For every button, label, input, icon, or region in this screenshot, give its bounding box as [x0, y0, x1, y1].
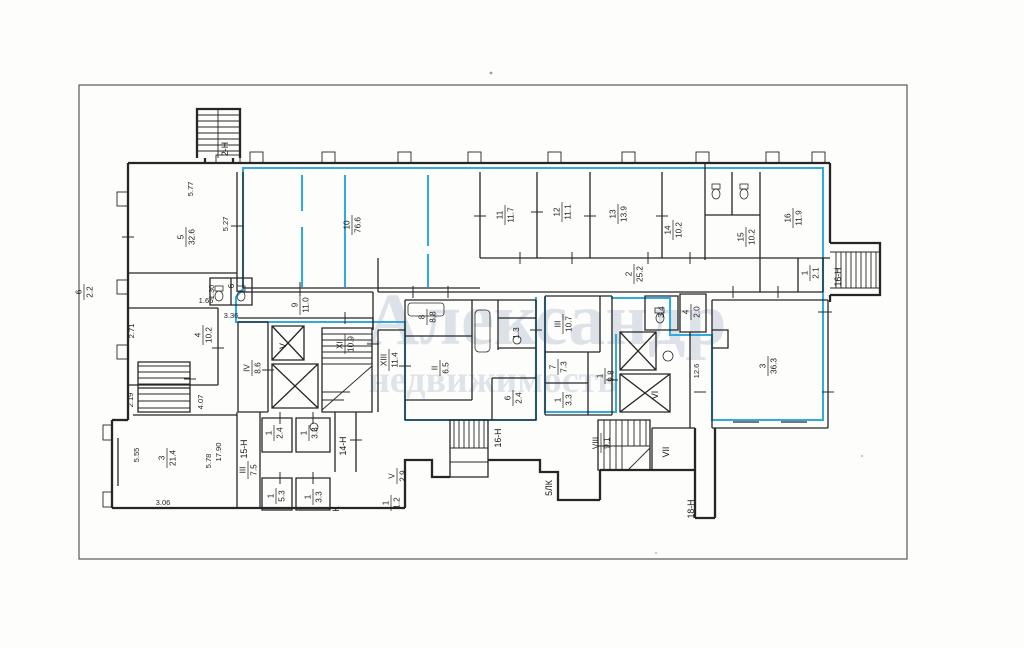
svg-text:10.2: 10.2	[205, 327, 214, 343]
svg-text:1: 1	[265, 430, 274, 435]
svg-text:9.8: 9.8	[607, 370, 616, 382]
room-label-1-24: 12.4	[265, 425, 285, 441]
svg-text:14: 14	[664, 225, 673, 235]
svg-text:2.4: 2.4	[515, 392, 524, 404]
svg-text:6: 6	[504, 395, 513, 400]
svg-text:1: 1	[554, 397, 563, 402]
room-label-1-33b: 13.3	[300, 425, 320, 441]
svg-text:2.1: 2.1	[812, 267, 821, 279]
svg-text:8: 8	[418, 314, 427, 319]
svg-text:10.2: 10.2	[748, 229, 757, 245]
annotation-16n-right: 16-Н	[833, 267, 843, 286]
room-label-1-small: 12.1	[801, 265, 821, 281]
svg-text:5.3: 5.3	[278, 490, 287, 502]
svg-text:9.1: 9.1	[603, 437, 612, 449]
room-label-1-3: 1.3	[512, 327, 521, 339]
svg-text:2.4: 2.4	[276, 427, 285, 439]
room-label-5: 532.6	[177, 227, 197, 247]
svg-text:5: 5	[177, 234, 186, 239]
floor-plan-drawing: Александр недвижимость	[0, 0, 1024, 648]
room-label-1-33c: 13.3	[304, 489, 324, 505]
svg-text:3.3: 3.3	[565, 394, 574, 406]
svg-text:2: 2	[625, 271, 634, 276]
room-label-3-4: 3.4	[657, 306, 666, 318]
svg-text:III: III	[554, 321, 563, 328]
room-label-6-ext: 62.2	[75, 284, 95, 300]
svg-text:1.3: 1.3	[512, 327, 521, 339]
svg-text:10: 10	[343, 220, 352, 230]
svg-text:1: 1	[300, 430, 309, 435]
room-label-11: 1111.7	[496, 205, 516, 225]
dim-306: 3.06	[156, 498, 171, 507]
dim-1790: 17.90	[214, 442, 223, 461]
svg-text:32.6: 32.6	[188, 229, 197, 245]
room-label-III-75: III7.5	[239, 461, 259, 479]
svg-text:3.3: 3.3	[315, 491, 324, 503]
room-label-IV: IV8.6	[243, 360, 263, 376]
dim-165: 1.65	[199, 296, 214, 305]
svg-text:8.6: 8.6	[254, 362, 263, 374]
svg-text:11.7: 11.7	[507, 207, 516, 223]
elevator-label-vi: VI	[650, 391, 660, 399]
annotation-5lk: 5ЛК	[544, 479, 554, 496]
svg-text:10.9: 10.9	[347, 336, 356, 352]
svg-text:6.5: 6.5	[442, 362, 451, 374]
room-label-V-29: V2.9	[388, 468, 408, 484]
svg-text:1: 1	[382, 500, 391, 505]
svg-text:7.5: 7.5	[250, 464, 259, 476]
svg-text:XIII: XIII	[380, 354, 389, 366]
dim-577: 5.77	[186, 182, 195, 197]
annotation-14n: 14-Н	[338, 436, 348, 455]
svg-text:11.4: 11.4	[391, 352, 400, 368]
room-label-3-right: 336.3	[759, 356, 779, 376]
svg-text:2.0: 2.0	[693, 306, 702, 318]
dim-336: 3.36	[224, 311, 239, 320]
room-label-15: 1510.2	[737, 227, 757, 247]
svg-text:1: 1	[801, 270, 810, 275]
svg-text:7.3: 7.3	[560, 361, 569, 373]
svg-text:13: 13	[609, 209, 618, 219]
svg-text:1.2: 1.2	[393, 497, 402, 509]
svg-text:II: II	[431, 366, 440, 371]
svg-text:1: 1	[304, 494, 313, 499]
svg-text:III: III	[239, 467, 248, 474]
annotation-16n-bottom: 16-Н	[493, 428, 503, 447]
elevator-label-v: V	[278, 343, 288, 349]
room-label-XII: XII10.9	[336, 334, 356, 354]
svg-text:6: 6	[227, 283, 236, 288]
svg-text:10.2: 10.2	[675, 222, 684, 238]
dim-219: 2.19	[126, 393, 135, 408]
elevator-label-vii: VII	[661, 447, 671, 458]
svg-text:2.2: 2.2	[86, 286, 95, 298]
svg-text:25.2: 25.2	[636, 266, 645, 282]
room-label-3-left: 321.4	[158, 448, 178, 468]
dim-555: 5.55	[132, 448, 141, 463]
room-label-16: 1611.9	[784, 208, 804, 228]
svg-text:1: 1	[596, 373, 605, 378]
room-label-13: 1313.9	[609, 204, 629, 224]
svg-text:4: 4	[194, 332, 203, 337]
dim-578: 5.78	[204, 454, 213, 469]
svg-text:9: 9	[291, 302, 300, 307]
svg-text:XII: XII	[336, 339, 345, 349]
annotation-18n: 18-Н	[686, 499, 696, 518]
svg-text:11.0: 11.0	[302, 297, 311, 313]
svg-text:11.1: 11.1	[564, 204, 573, 220]
dim-271: 2.71	[127, 324, 136, 339]
svg-text:16: 16	[784, 213, 793, 223]
room-label-6-wc: 6	[227, 283, 236, 288]
svg-text:3.4: 3.4	[657, 306, 666, 318]
room-label-12: 1211.1	[553, 202, 573, 222]
dim-126: 12.6	[692, 364, 701, 379]
scanned-floor-plan-page: Александр недвижимость	[0, 0, 1024, 648]
annotation-15n: 15-Н	[239, 439, 249, 458]
svg-text:12: 12	[553, 207, 562, 217]
svg-text:10.7: 10.7	[565, 316, 574, 332]
svg-text:11: 11	[496, 210, 505, 219]
annotation-2n: 2-Н	[220, 142, 230, 156]
svg-text:4: 4	[682, 309, 691, 314]
room-label-14: 1410.2	[664, 220, 684, 240]
svg-text:11.9: 11.9	[795, 210, 804, 226]
svg-text:V: V	[388, 473, 397, 479]
svg-text:1: 1	[267, 493, 276, 498]
svg-text:VIII: VIII	[592, 437, 601, 449]
svg-text:15: 15	[737, 232, 746, 242]
svg-text:2.9: 2.9	[399, 470, 408, 482]
svg-text:IV: IV	[243, 364, 252, 372]
room-label-4-left: 410.2	[194, 325, 214, 345]
svg-text:6: 6	[75, 289, 84, 294]
svg-text:76.6: 76.6	[354, 217, 363, 233]
svg-text:3.3: 3.3	[311, 427, 320, 439]
dim-407: 4.07	[196, 395, 205, 410]
svg-text:3: 3	[158, 455, 167, 460]
svg-text:8.8: 8.8	[429, 311, 438, 323]
svg-text:7: 7	[549, 364, 558, 369]
dim-527: 5.27	[221, 217, 230, 232]
room-label-9: 911.0	[291, 295, 311, 315]
svg-text:36.3: 36.3	[770, 358, 779, 374]
room-label-VIII: VIII9.1	[592, 433, 612, 453]
svg-text:3: 3	[759, 363, 768, 368]
annotation-k: К	[331, 506, 341, 512]
svg-text:21.4: 21.4	[169, 450, 178, 466]
svg-text:13.9: 13.9	[620, 206, 629, 222]
room-label-1-53: 15.3	[267, 488, 287, 504]
